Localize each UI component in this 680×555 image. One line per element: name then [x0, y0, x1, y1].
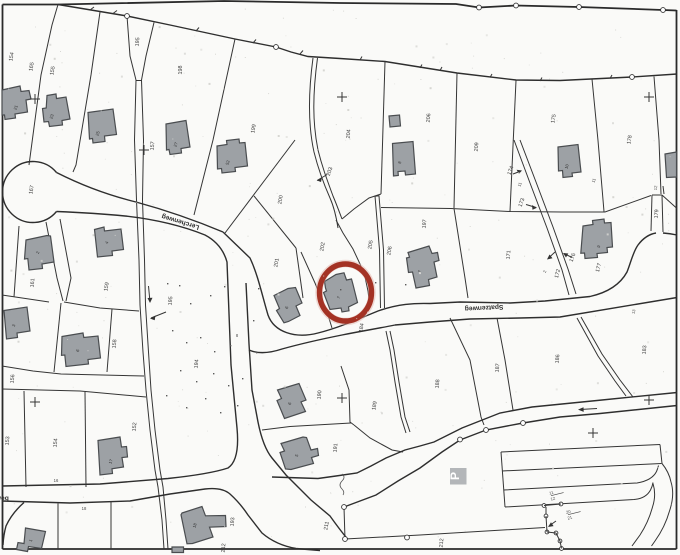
svg-text:197: 197 [422, 219, 429, 228]
svg-text:16: 16 [54, 478, 59, 483]
svg-text:193: 193 [230, 517, 237, 526]
svg-text:179: 179 [654, 209, 661, 218]
svg-text:183: 183 [642, 345, 649, 354]
svg-text:212: 212 [221, 543, 228, 552]
svg-text:204: 204 [346, 129, 353, 138]
svg-text:153: 153 [5, 436, 12, 445]
svg-text:191: 191 [333, 443, 340, 452]
svg-text:P: P [448, 472, 462, 480]
svg-text:188: 188 [435, 379, 442, 388]
svg-text:157: 157 [150, 141, 157, 150]
svg-text:158: 158 [112, 339, 119, 348]
svg-text:186: 186 [555, 354, 562, 363]
svg-text:161: 161 [30, 278, 37, 287]
svg-text:190: 190 [317, 390, 324, 399]
svg-text:206: 206 [426, 113, 433, 122]
svg-text:209: 209 [474, 142, 481, 151]
svg-text:195: 195 [168, 296, 175, 305]
svg-text:152: 152 [132, 422, 139, 431]
svg-text:198: 198 [178, 66, 184, 75]
svg-text:194: 194 [194, 359, 201, 368]
svg-text:154: 154 [53, 438, 60, 447]
svg-text:171: 171 [506, 250, 513, 259]
svg-text:rweg: rweg [0, 495, 9, 502]
svg-text:18: 18 [82, 506, 87, 511]
svg-text:156: 156 [10, 374, 17, 383]
svg-text:195: 195 [135, 37, 142, 46]
svg-text:212: 212 [439, 538, 446, 547]
svg-text:187: 187 [495, 363, 502, 372]
